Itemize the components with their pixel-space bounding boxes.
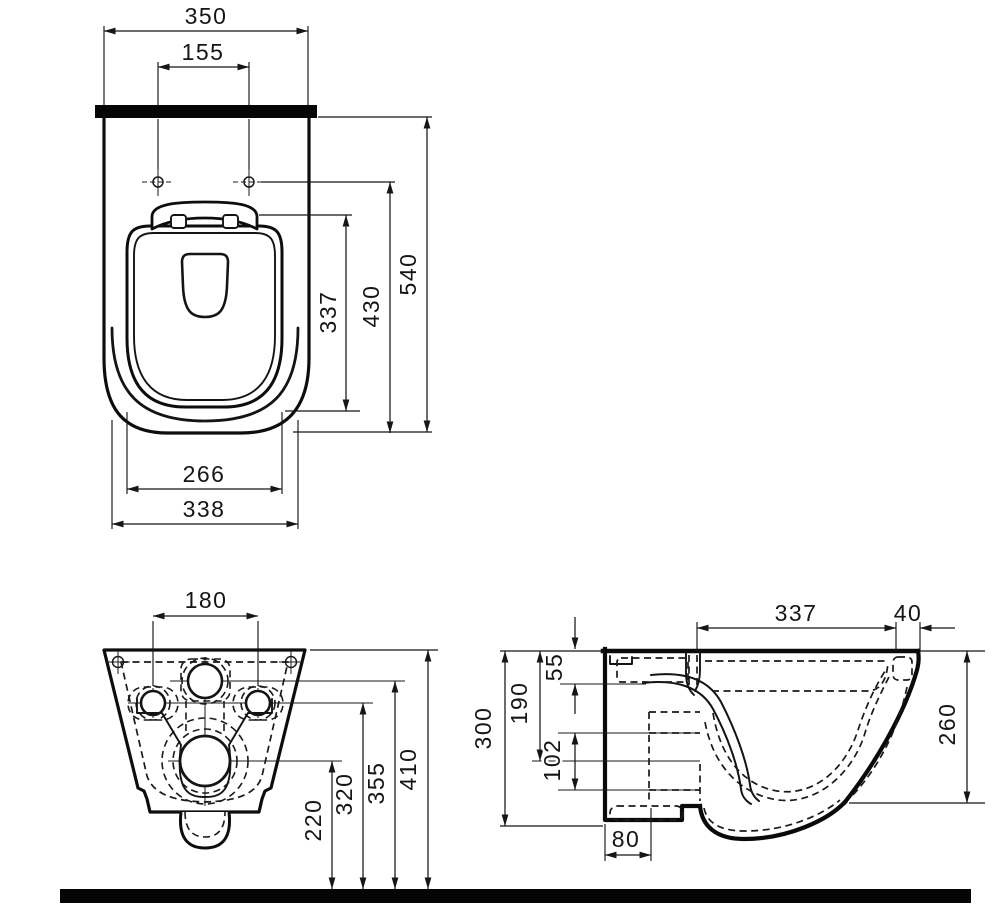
drain-spigot bbox=[180, 812, 229, 848]
side-view: 337 40 55 190 300 102 260 80 bbox=[470, 600, 985, 861]
rim-section-dashed bbox=[893, 657, 912, 680]
dim-label-side-drain-drop: 190 bbox=[506, 682, 532, 725]
wc-dimension-drawing: 350 155 337 430 540 266 338 bbox=[0, 0, 1000, 912]
bowl-underside-dashed bbox=[704, 800, 840, 831]
water-opening bbox=[182, 254, 228, 317]
dim-label-top-seat-depth: 337 bbox=[315, 291, 341, 334]
dim-label-top-hole-depth: 430 bbox=[358, 285, 384, 328]
hinge-right bbox=[223, 215, 238, 228]
water-line-dashed bbox=[712, 662, 888, 691]
dim-label-back-drain-height: 220 bbox=[300, 799, 326, 842]
drain-channel-dashed bbox=[649, 712, 700, 801]
dim-label-top-seat-width: 266 bbox=[183, 461, 226, 487]
dim-label-top-total-depth: 540 bbox=[395, 253, 421, 296]
dim-label-back-side-hole-height: 320 bbox=[331, 773, 357, 816]
trap-wall-outer bbox=[643, 682, 751, 804]
dim-label-side-height: 300 bbox=[470, 707, 496, 750]
dim-label-side-front-height: 260 bbox=[934, 703, 960, 746]
dim-label-back-hole-spacing: 180 bbox=[185, 587, 228, 613]
drain-hole bbox=[180, 736, 230, 786]
technical-drawing-canvas: 350 155 337 430 540 266 338 bbox=[0, 0, 1000, 912]
dim-label-top-width: 350 bbox=[185, 3, 228, 29]
dim-label-top-bowl-width: 338 bbox=[183, 496, 226, 522]
side-hole-right bbox=[246, 691, 270, 715]
trap-wall-inner bbox=[651, 674, 759, 801]
inlet-chamber-dashed bbox=[617, 658, 688, 682]
back-view: 180 220 320 355 410 bbox=[104, 587, 438, 889]
hinge-left bbox=[171, 215, 186, 228]
side-hole-left bbox=[141, 691, 165, 715]
side-profile-bowl-bottom bbox=[700, 802, 845, 839]
wall-line bbox=[95, 105, 317, 118]
side-profile-front bbox=[845, 651, 919, 802]
dim-label-top-hole-spacing: 155 bbox=[182, 39, 225, 65]
dim-label-back-top-height: 410 bbox=[395, 748, 421, 791]
side-extension-lines bbox=[500, 622, 985, 861]
dim-label-side-drain-offset: 80 bbox=[612, 826, 641, 852]
top-view: 350 155 337 430 540 266 338 bbox=[95, 3, 432, 529]
water-inlet bbox=[188, 664, 222, 698]
dim-label-back-inlet-height: 355 bbox=[363, 762, 389, 805]
dim-label-side-port-span: 102 bbox=[539, 739, 565, 782]
floor-line bbox=[60, 889, 971, 903]
dim-label-side-rim-depth: 40 bbox=[894, 600, 923, 626]
dim-label-side-inlet-drop: 55 bbox=[541, 653, 567, 682]
spout-channel-dashed bbox=[689, 655, 697, 689]
dim-label-side-depth: 337 bbox=[775, 600, 818, 626]
